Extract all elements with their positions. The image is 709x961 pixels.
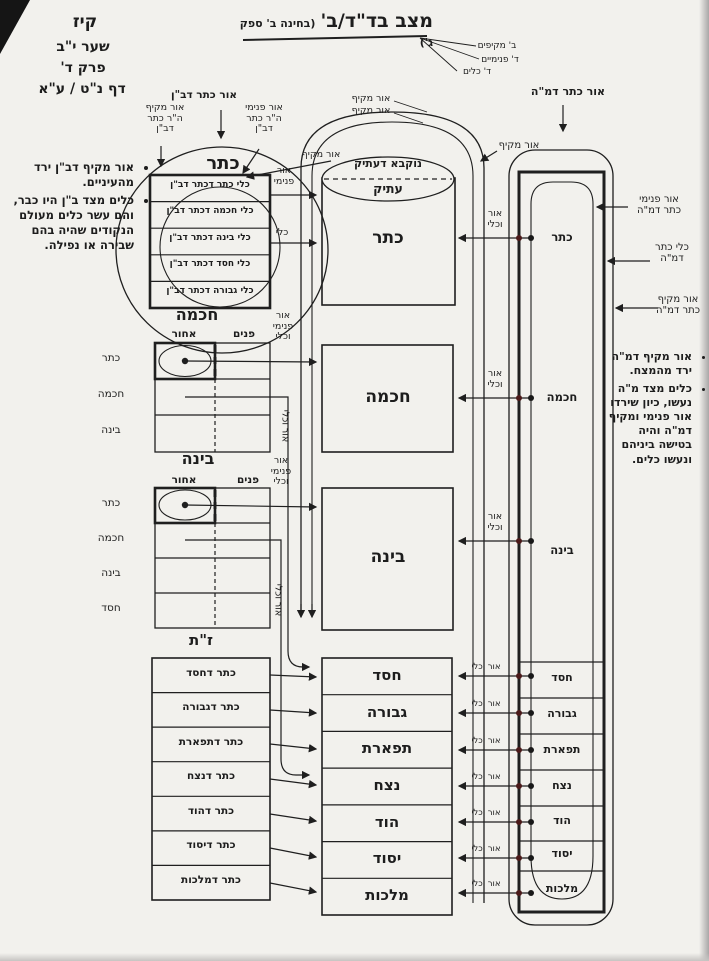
section-title-bina: בינה (170, 450, 226, 468)
note-item: אור מקיף דב"ן ירד מהעיניים. (10, 160, 134, 189)
label-nukva-deatik: נוקבא דעתיק (324, 158, 452, 170)
label-or-ukli: אור וכלי (474, 369, 516, 390)
box-keter: כתר (330, 229, 446, 248)
zat-row: כתר דהוד (154, 806, 268, 818)
folio-number: קיז (55, 13, 115, 32)
notes-mah: אור מקיף דמ"ה ירד מהמצח. כלים מצד מ"ה נע… (606, 350, 706, 471)
page-title: מצב בד"ד/ב' (בחינה ב' ספק ג') (238, 11, 433, 50)
grid-row-chesed: כלי חסד דכתר דב"ן (152, 259, 268, 269)
pointer-label-pnimiim: ד' פנימיים (468, 55, 532, 65)
col-header-achor: אחור (162, 329, 206, 341)
stack-chesed: חסד (324, 667, 450, 684)
zat-row: כתר דגבורה (154, 702, 268, 714)
label-or-ukli: אור וכלי (458, 880, 514, 890)
scanned-page: קיז שער י"ב פרק ד' דף נ"ט / ע"א מצב בד"ד… (0, 0, 709, 961)
section-title-zat: ז"ת (176, 632, 226, 649)
label-or-ukli: אור וכלי (458, 700, 514, 710)
chapter-ref: פרק ד' (38, 61, 128, 77)
label-or-makif-outer: אור מקיף (346, 94, 396, 105)
label-or-keter-ban: אור כתר דב"ן (148, 90, 260, 102)
stack-hod: הוד (324, 814, 450, 831)
rc-gevura: גבורה (530, 708, 594, 720)
label-or-ukli-vertical: אור וכלי (279, 410, 290, 442)
label-kli-keter-mah: כלי כתר דמ"ה (644, 242, 700, 264)
label-or-makif-keter-mah: אור מקיף כתר דמ"ה (648, 294, 708, 316)
label-or-ukli: אור וכלי (458, 737, 514, 747)
box-bina: בינה (330, 548, 446, 567)
col-header-panim: פנים (224, 329, 264, 341)
pointer-label-kelim: ד' כלים (450, 67, 504, 77)
label-or-ukli-vertical: אור וכלי (272, 584, 283, 616)
row-label-bina: בינה (85, 568, 137, 580)
label-or-keter-mah: אור כתר דמ"ה (503, 86, 633, 98)
rc-chesed: חסד (530, 672, 594, 684)
rc-malchut: מלכות (530, 883, 594, 895)
label-or-makif-right: אור מקיף (490, 140, 548, 151)
label-or-makif-hr-keter: אור מקיף ה"ר כתר דב"ן (136, 103, 194, 135)
label-or-pnimi-hr-keter: אור פנימי ה"ר כתר דב"ן (226, 103, 302, 135)
rc-tiferet: תפארת (530, 744, 594, 756)
zat-row: כתר דמלכות (154, 875, 268, 887)
stack-gevura: גבורה (324, 704, 450, 721)
row-label-chochma: חכמה (85, 389, 137, 401)
grid-row-chochma: כלי חכמה דכתר דב"ן (152, 206, 268, 216)
notes-ban: אור מקיף דב"ן ירד מהעיניים. כלים מצד ב"ן… (10, 160, 148, 256)
rc-netzach: נצח (530, 780, 594, 792)
pointer-label-makifim: ב' מקיפים (466, 41, 528, 51)
section-title-chochma: חכמה (166, 306, 228, 324)
section-title-keter: כתר (192, 154, 254, 174)
row-label-keter: כתר (85, 498, 137, 510)
stack-tiferet: תפארת (324, 740, 450, 757)
grid-row-keter: כלי כתר דכתר דב"ן (152, 180, 268, 190)
rc-bina: בינה (532, 544, 592, 557)
zat-row: כתר דחסד (154, 668, 268, 680)
label-or-pnimi-ukli: אור פנימי וכלי (260, 456, 302, 488)
row-label-keter: כתר (85, 353, 137, 365)
zat-row: כתר דנצח (154, 771, 268, 783)
label-or-ukli: אור וכלי (458, 773, 514, 783)
rc-keter: כתר (532, 231, 592, 244)
stack-netzach: נצח (324, 777, 450, 794)
label-or-ukli: אור וכלי (474, 209, 516, 230)
stack-yesod: יסוד (324, 850, 450, 867)
stack-malchut: מלכות (324, 887, 450, 904)
grid-row-gevura: כלי גבורה דכתר דב"ן (152, 286, 268, 296)
note-item: אור מקיף דמ"ה ירד מהמצח. (606, 350, 692, 378)
label-or-ukli: אור וכלי (474, 512, 516, 533)
row-label-bina: בינה (85, 425, 137, 437)
gate-ref: שער י"ב (38, 40, 128, 56)
label-or-pnimi-keter-mah: אור פנימי כתר דמ"ה (624, 194, 694, 216)
zat-row: כתר דתפארת (154, 737, 268, 749)
daf-ref: דף נ"ט / ע"א (18, 82, 146, 98)
label-or-ukli: אור וכלי (458, 845, 514, 855)
label-or-ukli: אור וכלי (458, 809, 514, 819)
note-item: כלים מצד ב"ן היו כבר, והם עשר כלים מעולם… (10, 193, 134, 252)
label-atik: עתיק (324, 182, 452, 196)
rc-yesod: יסוד (530, 848, 594, 860)
label-or-ukli: אור וכלי (458, 663, 514, 673)
box-chochma: חכמה (330, 388, 446, 407)
title-main: מצב בד"ד/ב' (320, 10, 433, 32)
page-corner-shadow (0, 0, 30, 54)
label-or-pnimi-ukli: אור פנימי וכלי (262, 311, 304, 343)
zat-row: כתר דיסוד (154, 840, 268, 852)
note-item: כלים מצד מ"ה נעשו, כיון שירדו אור פנימי … (606, 382, 692, 466)
rc-chochma: חכמה (532, 391, 592, 404)
grid-row-bina: כלי בינה דכתר דב"ן (152, 233, 268, 243)
row-label-chochma: חכמה (85, 533, 137, 545)
col-header-achor: אחור (162, 475, 206, 487)
label-or-makif-inner: אור מקיף (346, 106, 396, 117)
label-or-pnimi-arrow: אור פנימי (264, 166, 304, 187)
label-kli-arrow: כלי (264, 228, 300, 239)
row-label-chesed: חסד (85, 603, 137, 615)
rc-hod: הוד (530, 815, 594, 827)
